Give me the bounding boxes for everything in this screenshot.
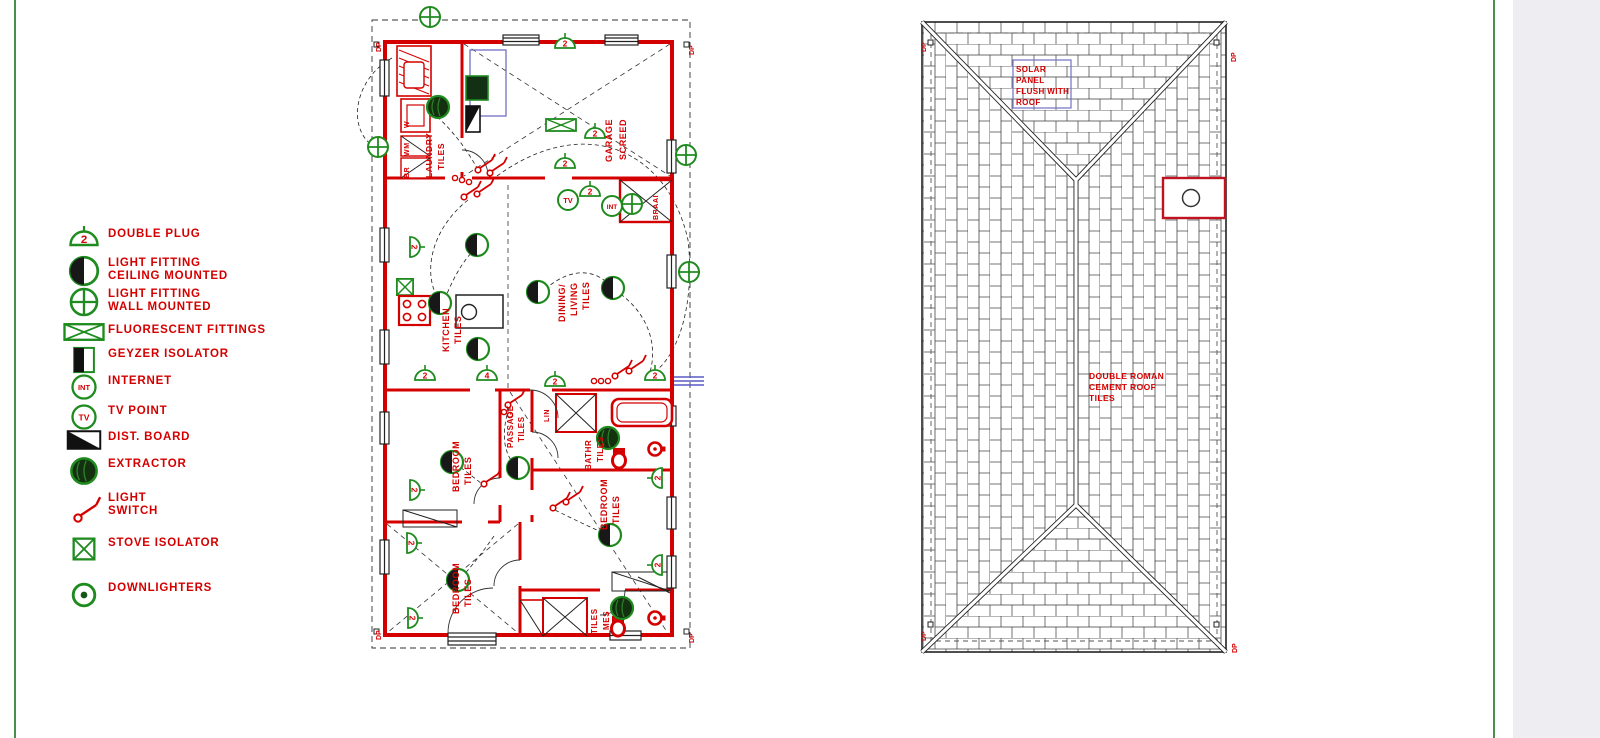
ceiling-light-icon <box>527 281 549 303</box>
tv-point-icon <box>558 190 578 210</box>
solar-note-line: SOLAR <box>1016 65 1046 74</box>
room-label-garage: GARAGE <box>604 119 614 162</box>
legend-item-light-ceiling: LIGHT FITTING CEILING MOUNTED <box>60 255 228 287</box>
page-guide-line-left <box>14 0 16 738</box>
sink <box>462 305 477 320</box>
appliance-label: BR <box>404 167 411 178</box>
solar-note-line: ROOF <box>1016 98 1041 107</box>
room-label-dining: TILES <box>581 281 591 310</box>
legend-item-downlighters: DOWNLIGHTERS <box>60 580 212 610</box>
legend-item-fluorescent: FLUORESCENT FITTINGS <box>60 322 266 342</box>
legend-label: LIGHT FITTING WALL MOUNTED <box>108 286 211 314</box>
fluorescent-icon <box>60 322 108 342</box>
roof-unit-box <box>1163 178 1225 218</box>
extractor-icon <box>611 597 633 619</box>
room-label-braai: BRAAI <box>653 195 660 220</box>
internet-icon <box>60 373 108 401</box>
legend-label: FLUORESCENT FITTINGS <box>108 322 266 337</box>
ceiling-light-icon <box>602 277 624 299</box>
window-schedule-mark <box>674 377 704 385</box>
toilet-icon <box>613 448 626 468</box>
light-switch-icon <box>563 486 583 505</box>
double-plug-icon <box>415 365 435 381</box>
double-plug-icon <box>555 33 575 49</box>
drawing-canvas: 2 4 <box>0 0 1600 738</box>
legend-label: INTERNET <box>108 373 172 388</box>
legend-item-light-switch: LIGHT SWITCH <box>60 490 158 524</box>
dp-label: DP <box>689 633 696 643</box>
geyser-unit <box>466 76 488 100</box>
room-label-bedroom1: TILES <box>463 456 473 485</box>
fluorescent-icon <box>546 119 576 131</box>
dp-label: DP <box>921 42 928 52</box>
dp-label: DP <box>921 631 928 641</box>
legend-label: DOWNLIGHTERS <box>108 580 212 595</box>
appliance-label: W <box>404 121 411 128</box>
double-plug-icon <box>545 371 565 387</box>
legend-label: DOUBLE PLUG <box>108 226 201 241</box>
wall-light-icon <box>368 137 388 157</box>
legend-label: TV POINT <box>108 403 167 418</box>
legend-item-tv-point: TV POINT <box>60 403 167 431</box>
light-switch-icon <box>487 157 507 176</box>
tiles-note-line: CEMENT ROOF <box>1089 382 1156 392</box>
legend-label: GEYZER ISOLATOR <box>108 346 229 361</box>
double-plug-icon <box>477 365 497 381</box>
wall-light-icon <box>676 145 696 165</box>
legend-label: DIST. BOARD <box>108 429 190 444</box>
wall-light-icon <box>622 194 642 214</box>
double-plug-icon <box>555 153 575 169</box>
floor-plan: LAUNDRY TILES W WM BR GARAGE SCREED BRAA… <box>330 0 720 680</box>
wall-light-icon <box>679 262 699 282</box>
ceiling-light-icon <box>507 457 529 479</box>
room-label-kitchen: TILES <box>453 315 463 344</box>
room-label-passage: TILES <box>517 416 526 442</box>
tiles-note-line: DOUBLE ROMAN <box>1089 371 1164 381</box>
double-plug-icon <box>410 480 426 500</box>
legend-item-extractor: EXTRACTOR <box>60 456 187 486</box>
legend-label: EXTRACTOR <box>108 456 187 471</box>
legend-label: LIGHT FITTING CEILING MOUNTED <box>108 255 228 283</box>
internet-icon <box>602 196 622 216</box>
legend-item-geyzer: GEYZER ISOLATOR <box>60 346 229 374</box>
room-label-bedroom2: BEDROOM <box>451 563 461 614</box>
light-switch-icon <box>505 389 525 408</box>
extractor-icon <box>60 456 108 486</box>
double-plug-icon <box>407 533 423 553</box>
dist-board-icon <box>466 106 480 132</box>
legend-item-dist-board: DIST. BOARD <box>60 429 190 451</box>
basin-icon <box>649 443 666 456</box>
solar-note-line: FLUSH WITH <box>1016 87 1069 96</box>
room-label-bedroom3: TILES <box>611 495 621 524</box>
page-guide-line-right <box>1493 0 1495 738</box>
light-fitting-ceiling-icon <box>60 255 108 287</box>
dp-label: DP <box>376 630 383 640</box>
room-label-bathroom: TILES <box>596 436 605 462</box>
legend-item-stove-isolator: STOVE ISOLATOR <box>60 535 220 563</box>
ceiling-light-icon <box>467 338 489 360</box>
tiles-note-line: TILES <box>1089 393 1115 403</box>
geyzer-isolator-icon <box>60 346 108 374</box>
double-plug-icon <box>408 608 424 628</box>
side-panel <box>1513 0 1600 738</box>
room-label-dining: LIVING <box>569 282 579 316</box>
legend-item-double-plug: DOUBLE PLUG <box>60 226 201 252</box>
room-label-bathroom: BATHR <box>584 440 593 470</box>
light-switch-icon <box>481 468 501 487</box>
appliance-label: WM <box>404 142 411 156</box>
room-label-bedroom1: BEDROOM <box>451 441 461 492</box>
tv-point-icon <box>60 403 108 431</box>
room-label-mes: MES <box>602 611 611 630</box>
double-plug-icon <box>410 237 426 257</box>
laundry-fixtures <box>397 46 506 178</box>
room-label-laundry: LAUNDRY <box>424 133 434 178</box>
ceiling-light-icon <box>466 234 488 256</box>
legend-label: LIGHT SWITCH <box>108 490 158 518</box>
legend-item-internet: INTERNET <box>60 373 172 401</box>
dp-label: DP <box>689 45 696 55</box>
double-plug-icon <box>585 123 605 139</box>
dist-board-icon <box>60 429 108 451</box>
basin-icon <box>649 612 666 625</box>
double-plug-icon <box>60 226 108 252</box>
room-label-laundry: TILES <box>436 143 446 170</box>
room-label-bedroom2: TILES <box>463 578 473 607</box>
light-switch-icon <box>60 490 108 524</box>
double-plug-icon <box>580 181 600 197</box>
downlighters-icon <box>60 580 108 610</box>
stove-isolator-icon <box>60 535 108 563</box>
legend-label: STOVE ISOLATOR <box>108 535 220 550</box>
solar-note-line: PANEL <box>1016 76 1045 85</box>
wall-light-icon <box>420 7 440 27</box>
stove <box>399 296 430 325</box>
room-label-bedroom3: BEDROOM <box>599 479 609 530</box>
room-label-garage: SCREED <box>618 119 628 160</box>
light-fitting-wall-icon <box>60 286 108 318</box>
roof-plan: SOLAR PANEL FLUSH WITH ROOF DOUBLE ROMAN… <box>890 0 1260 680</box>
room-label-dining: DINING/ <box>557 284 567 322</box>
room-label-passage: PASSAGE <box>506 405 515 448</box>
legend-item-light-wall: LIGHT FITTING WALL MOUNTED <box>60 286 211 318</box>
room-label-kitchen: KITCHEN <box>441 308 451 352</box>
dp-label: DP <box>1232 643 1239 653</box>
stove-isolator-icon <box>397 279 413 295</box>
dp-label: DP <box>376 42 383 52</box>
dp-label: DP <box>1231 52 1238 62</box>
room-label-mes: TILES <box>590 608 599 634</box>
room-labels: LAUNDRY TILES W WM BR GARAGE SCREED BRAA… <box>404 119 660 634</box>
extractor-icon <box>427 96 449 118</box>
room-label-lin: LIN <box>544 409 551 422</box>
double-plug-icon <box>645 365 665 381</box>
